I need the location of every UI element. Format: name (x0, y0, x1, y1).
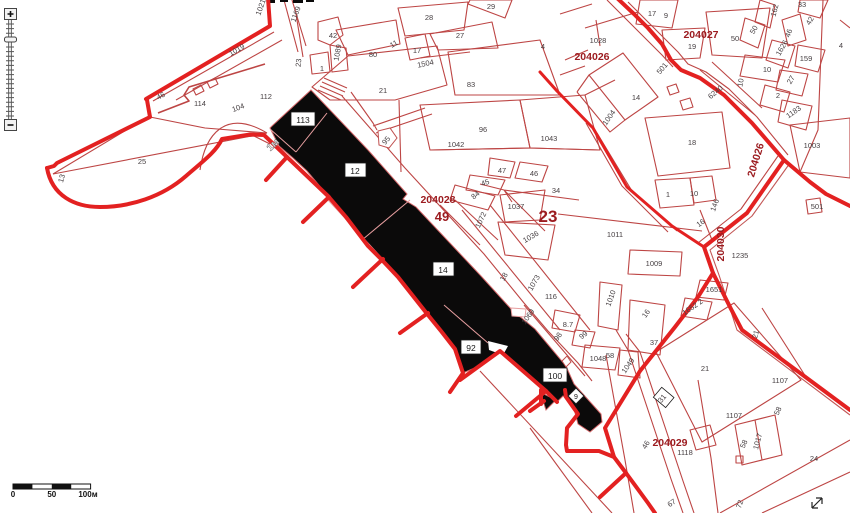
svg-text:9: 9 (574, 394, 578, 401)
svg-text:8.7: 8.7 (563, 320, 573, 329)
svg-text:12: 12 (350, 166, 360, 176)
svg-text:14: 14 (632, 93, 640, 102)
svg-text:21: 21 (701, 364, 709, 373)
svg-text:1028: 1028 (590, 36, 607, 45)
svg-text:1011: 1011 (607, 230, 623, 239)
svg-text:1118: 1118 (677, 448, 693, 457)
svg-text:1043: 1043 (541, 134, 558, 143)
svg-text:10: 10 (735, 78, 745, 88)
svg-text:25: 25 (138, 157, 146, 166)
svg-text:0: 0 (11, 490, 16, 499)
svg-text:204030: 204030 (715, 226, 727, 261)
svg-text:2: 2 (776, 91, 780, 100)
svg-text:46: 46 (530, 169, 538, 178)
svg-text:50: 50 (47, 490, 56, 499)
svg-text:23: 23 (294, 58, 304, 67)
svg-text:17: 17 (413, 46, 421, 55)
svg-text:92: 92 (466, 343, 476, 353)
svg-text:23: 23 (539, 207, 558, 226)
svg-text:1037: 1037 (508, 202, 525, 211)
svg-text:501: 501 (811, 202, 824, 211)
svg-text:1: 1 (320, 64, 324, 73)
svg-text:47: 47 (498, 166, 506, 175)
svg-text:80: 80 (369, 50, 377, 59)
svg-text:1042: 1042 (448, 140, 465, 149)
svg-text:29: 29 (487, 2, 495, 11)
svg-text:34: 34 (552, 186, 560, 195)
svg-text:1009: 1009 (646, 259, 663, 268)
svg-text:100м: 100м (78, 490, 97, 499)
svg-text:21: 21 (379, 86, 387, 95)
svg-text:1048: 1048 (590, 354, 607, 363)
svg-text:33: 33 (798, 0, 806, 9)
svg-text:1651: 1651 (706, 285, 723, 294)
svg-text:50: 50 (731, 34, 739, 43)
svg-text:49: 49 (435, 209, 449, 224)
svg-text:37: 37 (650, 338, 658, 347)
svg-text:204026: 204026 (574, 51, 609, 63)
svg-text:14: 14 (438, 265, 448, 275)
svg-text:19: 19 (688, 42, 696, 51)
svg-text:1: 1 (666, 190, 670, 199)
svg-text:4: 4 (839, 41, 843, 50)
svg-text:1235: 1235 (732, 251, 749, 260)
svg-text:28: 28 (425, 13, 433, 22)
svg-text:42: 42 (329, 31, 337, 40)
svg-text:116: 116 (545, 292, 557, 301)
svg-text:1107: 1107 (772, 376, 788, 385)
svg-text:100: 100 (548, 371, 562, 381)
svg-text:113: 113 (296, 115, 310, 125)
svg-text:4: 4 (541, 42, 545, 51)
svg-text:83: 83 (467, 80, 475, 89)
svg-text:159: 159 (800, 54, 813, 63)
svg-text:18: 18 (688, 138, 696, 147)
svg-text:204028: 204028 (420, 194, 455, 206)
svg-text:204027: 204027 (683, 29, 718, 41)
svg-text:27: 27 (456, 31, 464, 40)
svg-text:204029: 204029 (652, 437, 687, 449)
svg-text:24: 24 (810, 454, 818, 463)
svg-text:114: 114 (194, 99, 206, 108)
svg-text:112: 112 (260, 92, 272, 101)
svg-text:96: 96 (479, 125, 487, 134)
svg-text:1003: 1003 (804, 141, 821, 150)
svg-text:10: 10 (763, 65, 771, 74)
svg-text:9: 9 (664, 11, 668, 20)
svg-text:58: 58 (606, 351, 614, 360)
svg-text:17: 17 (648, 9, 656, 18)
svg-text:1107: 1107 (726, 411, 742, 420)
svg-text:10: 10 (690, 189, 698, 198)
